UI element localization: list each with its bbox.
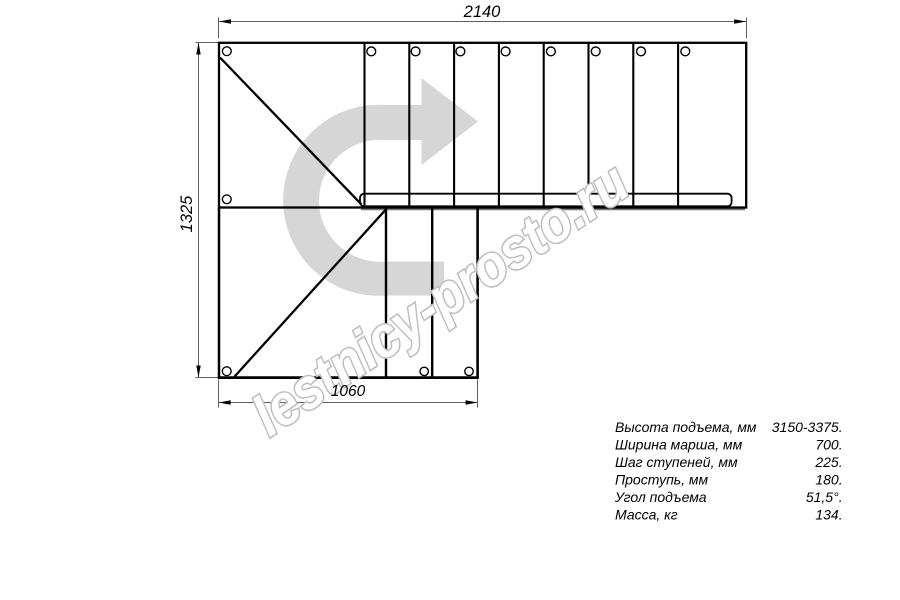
svg-text:Угол подъема: Угол подъема: [614, 489, 707, 505]
svg-text:2140: 2140: [463, 3, 502, 21]
svg-text:Проступь, мм: Проступь, мм: [615, 472, 709, 488]
svg-text:1325: 1325: [178, 195, 196, 233]
svg-text:1060: 1060: [331, 383, 366, 400]
svg-text:180.: 180.: [815, 472, 842, 488]
svg-text:Масса, кг: Масса, кг: [615, 507, 678, 523]
svg-text:51,5°.: 51,5°.: [806, 489, 843, 505]
svg-text:700.: 700.: [815, 437, 842, 453]
svg-text:3150-3375.: 3150-3375.: [772, 419, 843, 435]
svg-text:134.: 134.: [815, 507, 842, 523]
svg-text:Ширина марша, мм: Ширина марша, мм: [615, 437, 743, 453]
svg-text:Высота подъема, мм: Высота подъема, мм: [615, 419, 757, 435]
svg-text:Шаг ступеней, мм: Шаг ступеней, мм: [615, 454, 738, 470]
svg-text:225.: 225.: [814, 454, 842, 470]
